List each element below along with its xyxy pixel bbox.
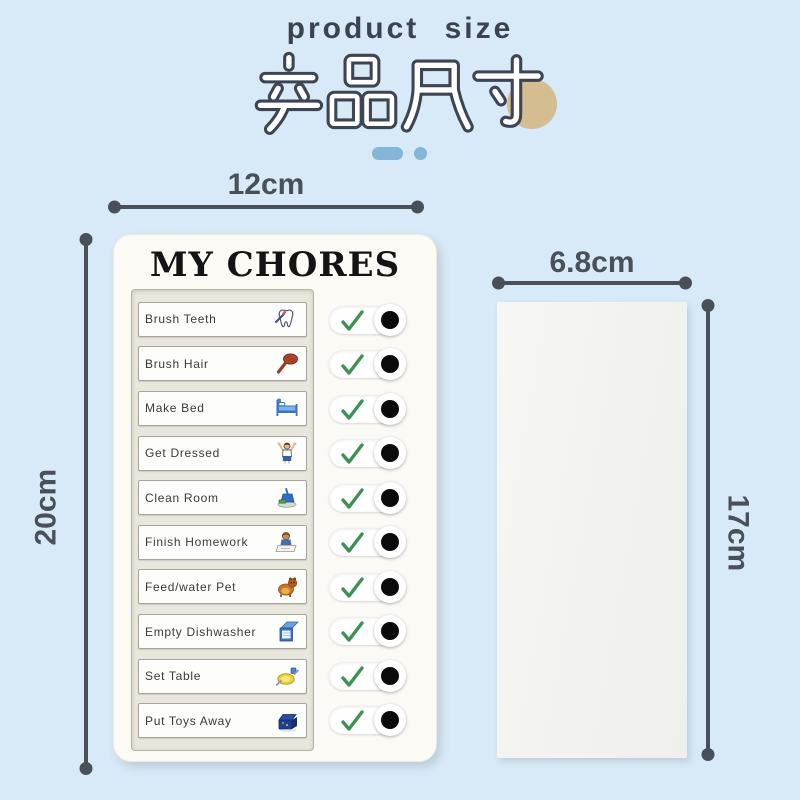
char-cun bbox=[478, 60, 538, 122]
slider-knob[interactable] bbox=[374, 348, 406, 380]
child-dressing-icon bbox=[274, 441, 300, 465]
chore-label: Brush Teeth bbox=[145, 312, 217, 326]
char-pin bbox=[332, 59, 392, 124]
char-chan bbox=[260, 58, 317, 130]
checkmark-icon bbox=[339, 708, 365, 734]
slider-knob[interactable] bbox=[374, 482, 406, 514]
chore-row-empty-dishwasher: Empty Dishwasher bbox=[138, 614, 307, 649]
check-slider[interactable] bbox=[329, 350, 403, 378]
slider-knob[interactable] bbox=[374, 704, 406, 736]
knob-dot bbox=[381, 489, 399, 507]
check-slider[interactable] bbox=[329, 706, 403, 734]
checkmark-icon bbox=[339, 441, 365, 467]
chore-label: Empty Dishwasher bbox=[145, 625, 256, 639]
checkmark-icon bbox=[339, 619, 365, 645]
knob-dot bbox=[381, 444, 399, 462]
dustpan-icon bbox=[274, 486, 300, 510]
check-slider[interactable] bbox=[329, 662, 403, 690]
chore-label: Put Toys Away bbox=[145, 714, 232, 728]
checkmark-icon bbox=[339, 486, 365, 512]
card-width-label: 6.8cm bbox=[497, 246, 687, 280]
knob-dot bbox=[381, 533, 399, 551]
chore-chart-board: MY CHORES Brush Teeth Brush Hair bbox=[113, 234, 437, 762]
check-slider[interactable] bbox=[329, 395, 403, 423]
chore-label: Clean Room bbox=[145, 491, 219, 505]
knob-dot bbox=[381, 400, 399, 418]
slider-knob[interactable] bbox=[374, 304, 406, 336]
dog-icon bbox=[274, 575, 300, 599]
slider-column bbox=[329, 289, 409, 751]
check-slider[interactable] bbox=[329, 306, 403, 334]
knob-dot bbox=[381, 311, 399, 329]
bed-icon bbox=[274, 396, 300, 420]
check-slider[interactable] bbox=[329, 439, 403, 467]
chore-label: Get Dressed bbox=[145, 446, 220, 460]
check-slider[interactable] bbox=[329, 573, 403, 601]
chore-row-clean-room: Clean Room bbox=[138, 480, 307, 515]
title-chinese bbox=[252, 50, 548, 136]
checkmark-icon bbox=[339, 575, 365, 601]
chore-row-brush-hair: Brush Hair bbox=[138, 346, 307, 381]
chore-label: Feed/water Pet bbox=[145, 580, 236, 594]
knob-dot bbox=[381, 622, 399, 640]
slider-knob[interactable] bbox=[374, 526, 406, 558]
slider-knob[interactable] bbox=[374, 437, 406, 469]
board-width-dimension-line bbox=[113, 205, 419, 209]
dash-decor bbox=[372, 147, 403, 160]
checkmark-icon bbox=[339, 664, 365, 690]
product-size-infographic: product size bbox=[0, 0, 800, 800]
blank-insert-card bbox=[497, 302, 687, 758]
chore-row-make-bed: Make Bed bbox=[138, 391, 307, 426]
board-height-dimension-line bbox=[84, 238, 88, 770]
toy-box-icon bbox=[274, 709, 300, 733]
chore-row-set-table: Set Table bbox=[138, 659, 307, 694]
checkmark-icon bbox=[339, 397, 365, 423]
board-width-label: 12cm bbox=[113, 168, 419, 202]
check-slider[interactable] bbox=[329, 528, 403, 556]
chore-row-put-toys-away: Put Toys Away bbox=[138, 703, 307, 738]
chore-label: Set Table bbox=[145, 669, 201, 683]
chore-slot-panel: Brush Teeth Brush Hair Make Bed bbox=[131, 289, 314, 751]
slider-knob[interactable] bbox=[374, 393, 406, 425]
chore-label: Make Bed bbox=[145, 401, 205, 415]
checkmark-icon bbox=[339, 352, 365, 378]
board-title: MY CHORES bbox=[114, 245, 436, 285]
knob-dot bbox=[381, 667, 399, 685]
char-chi bbox=[407, 65, 469, 127]
knob-dot bbox=[381, 711, 399, 729]
knob-dot bbox=[381, 355, 399, 373]
checkmark-icon bbox=[339, 530, 365, 556]
chore-label: Finish Homework bbox=[145, 535, 248, 549]
chore-row-brush-teeth: Brush Teeth bbox=[138, 302, 307, 337]
chore-row-finish-homework: Finish Homework bbox=[138, 525, 307, 560]
check-slider[interactable] bbox=[329, 484, 403, 512]
dot-decor bbox=[414, 147, 427, 160]
slider-knob[interactable] bbox=[374, 660, 406, 692]
slider-knob[interactable] bbox=[374, 615, 406, 647]
child-writing-icon bbox=[274, 530, 300, 554]
hairbrush-icon bbox=[274, 352, 300, 376]
checkmark-icon bbox=[339, 308, 365, 334]
card-width-dimension-line bbox=[497, 281, 687, 285]
knob-dot bbox=[381, 578, 399, 596]
chore-row-get-dressed: Get Dressed bbox=[138, 436, 307, 471]
check-slider[interactable] bbox=[329, 617, 403, 645]
chore-row-feed-pet: Feed/water Pet bbox=[138, 569, 307, 604]
slider-knob[interactable] bbox=[374, 571, 406, 603]
chore-label: Brush Hair bbox=[145, 357, 209, 371]
dishwasher-icon bbox=[274, 620, 300, 644]
title-english: product size bbox=[0, 12, 800, 46]
tooth-icon bbox=[274, 307, 300, 331]
table-setting-icon bbox=[274, 664, 300, 688]
card-height-dimension-line bbox=[706, 304, 710, 756]
board-height-label: 20cm bbox=[32, 471, 62, 546]
card-height-label: 17cm bbox=[723, 495, 753, 570]
